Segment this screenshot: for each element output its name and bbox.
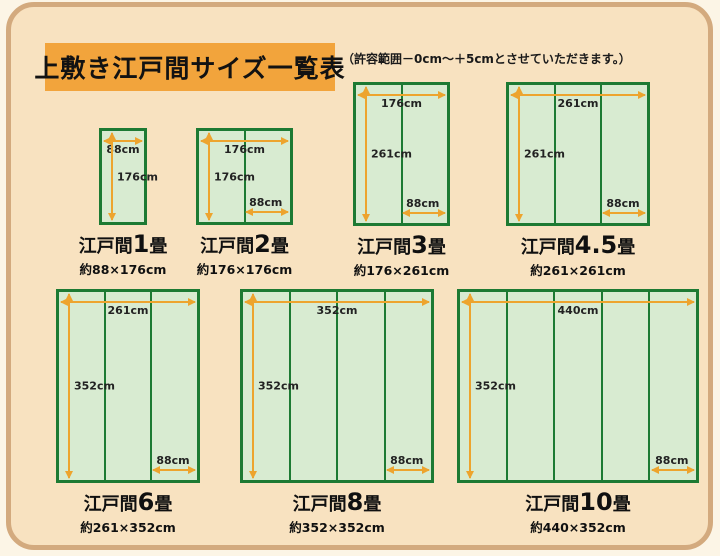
height-dimension-label: 176cm [117, 171, 158, 182]
height-dimension-arrow [111, 133, 113, 220]
diagram-title-prefix: 江戸間 [525, 494, 579, 515]
height-dimension-label: 261cm [371, 149, 412, 160]
diagram-title-suffix: 畳 [613, 494, 631, 515]
width-dimension-arrow [511, 94, 645, 96]
diagram-title-suffix: 畳 [428, 237, 446, 258]
diagram-caption: 江戸間6畳 約261×352cm [80, 489, 176, 536]
size-diagram-edoma-1jo: 88cm 176cm 江戸間1畳 約88×176cm [99, 128, 147, 225]
width-dimension-label: 352cm [243, 305, 431, 316]
diagram-title-number: 3 [411, 231, 428, 259]
size-diagram-edoma-4-5jo: 261cm 261cm 88cm 江戸間4.5畳 約261×261cm [506, 82, 650, 226]
diagram-title-suffix: 畳 [154, 494, 172, 515]
diagram-caption: 江戸間3畳 約176×261cm [354, 232, 450, 279]
diagram-title-number: 1 [133, 230, 150, 258]
panel-width-dimension-arrow [246, 211, 289, 213]
rug-rect: 176cm 261cm 88cm [353, 82, 450, 226]
panel-width-dimension-arrow [153, 469, 195, 471]
height-dimension-label: 352cm [475, 381, 516, 392]
width-dimension-arrow [104, 140, 142, 142]
height-dimension-label: 176cm [214, 171, 255, 182]
rug-panel [150, 292, 197, 480]
width-dimension-arrow [201, 140, 288, 142]
size-diagram-edoma-3jo: 176cm 261cm 88cm 江戸間3畳 約176×261cm [353, 82, 450, 226]
height-dimension-arrow [68, 294, 70, 478]
board-panel: 上敷き江戸間サイズ一覧表 （許容範囲－0cm～＋5cmとさせていただきます。） … [6, 2, 713, 550]
height-dimension-label: 352cm [258, 381, 299, 392]
diagram-title: 江戸間10畳 [525, 489, 630, 515]
height-dimension-arrow [208, 133, 210, 220]
diagram-size-text: 約176×176cm [197, 259, 293, 278]
panel-width-dimension-arrow [652, 469, 694, 471]
panel-width-dimension-label: 88cm [648, 455, 696, 466]
diagram-title-prefix: 江戸間 [79, 236, 133, 257]
diagram-title: 江戸間6畳 [80, 489, 176, 515]
diagram-title: 江戸間1畳 [79, 231, 168, 257]
panel-width-dimension-arrow [387, 469, 430, 471]
diagram-title-prefix: 江戸間 [357, 237, 411, 258]
diagram-title: 江戸間8畳 [289, 489, 385, 515]
panel-width-dimension-label: 88cm [242, 197, 291, 208]
diagram-size-text: 約352×352cm [289, 517, 385, 536]
height-dimension-arrow [365, 87, 367, 221]
diagram-title-number: 8 [347, 488, 364, 516]
diagram-caption: 江戸間4.5畳 約261×261cm [521, 232, 636, 279]
diagram-size-text: 約88×176cm [79, 259, 168, 278]
rug-rect: 261cm 261cm 88cm [506, 82, 650, 226]
height-dimension-arrow [469, 294, 471, 478]
rug-rect: 261cm 352cm 88cm [56, 289, 200, 483]
width-dimension-label: 440cm [460, 305, 696, 316]
diagram-title-suffix: 畳 [149, 236, 167, 257]
diagram-title-number: 4.5 [575, 231, 618, 259]
diagram-title-suffix: 畳 [363, 494, 381, 515]
height-dimension-arrow [518, 87, 520, 221]
height-dimension-arrow [252, 294, 254, 478]
page-title: 上敷き江戸間サイズ一覧表 [45, 43, 335, 91]
diagram-caption: 江戸間10畳 約440×352cm [525, 489, 630, 536]
rug-panel [601, 292, 649, 480]
rug-panel [336, 292, 384, 480]
diagram-size-text: 約440×352cm [525, 517, 630, 536]
diagram-title: 江戸間2畳 [197, 231, 293, 257]
width-dimension-label: 176cm [199, 144, 290, 155]
rug-panel [384, 292, 432, 480]
tolerance-note: （許容範囲－0cm～＋5cmとさせていただきます。） [342, 50, 631, 67]
rug-rect: 352cm 352cm 88cm [240, 289, 434, 483]
diagram-caption: 江戸間2畳 約176×176cm [197, 231, 293, 278]
width-dimension-arrow [245, 301, 429, 303]
width-dimension-arrow [61, 301, 195, 303]
panel-width-dimension-arrow [403, 212, 446, 214]
rug-rect: 88cm 176cm [99, 128, 147, 225]
height-dimension-label: 261cm [524, 149, 565, 160]
diagram-title-prefix: 江戸間 [293, 494, 347, 515]
width-dimension-arrow [358, 94, 445, 96]
width-dimension-label: 261cm [509, 98, 647, 109]
diagram-caption: 江戸間8畳 約352×352cm [289, 489, 385, 536]
rug-rect: 176cm 176cm 88cm [196, 128, 293, 225]
diagram-title-prefix: 江戸間 [521, 237, 575, 258]
rug-rect: 440cm 352cm 88cm [457, 289, 699, 483]
diagram-title-prefix: 江戸間 [200, 236, 254, 257]
diagram-size-text: 約176×261cm [354, 260, 450, 279]
size-diagram-edoma-2jo: 176cm 176cm 88cm 江戸間2畳 約176×176cm [196, 128, 293, 225]
rug-panel [648, 292, 696, 480]
width-dimension-label: 261cm [59, 305, 197, 316]
diagram-title-suffix: 畳 [271, 236, 289, 257]
panel-width-dimension-label: 88cm [383, 455, 432, 466]
diagram-title: 江戸間4.5畳 [521, 232, 636, 258]
size-diagram-edoma-10jo: 440cm 352cm 88cm 江戸間10畳 約440×352cm [457, 289, 699, 483]
diagram-title-suffix: 畳 [617, 237, 635, 258]
diagram-title: 江戸間3畳 [354, 232, 450, 258]
width-dimension-label: 176cm [356, 98, 447, 109]
size-diagram-edoma-8jo: 352cm 352cm 88cm 江戸間8畳 約352×352cm [240, 289, 434, 483]
rug-panel [553, 292, 601, 480]
diagram-title-prefix: 江戸間 [84, 494, 138, 515]
height-dimension-label: 352cm [74, 381, 115, 392]
panel-width-dimension-label: 88cm [599, 198, 647, 209]
diagram-caption: 江戸間1畳 約88×176cm [79, 231, 168, 278]
panel-width-dimension-label: 88cm [149, 455, 197, 466]
diagram-title-number: 6 [138, 488, 155, 516]
diagram-title-number: 2 [254, 230, 271, 258]
width-dimension-arrow [462, 301, 694, 303]
diagram-title-number: 10 [579, 488, 612, 516]
diagram-size-text: 約261×352cm [80, 517, 176, 536]
diagram-size-text: 約261×261cm [521, 260, 636, 279]
size-diagram-edoma-6jo: 261cm 352cm 88cm 江戸間6畳 約261×352cm [56, 289, 200, 483]
panel-width-dimension-label: 88cm [399, 198, 448, 209]
panel-width-dimension-arrow [603, 212, 645, 214]
width-dimension-label: 88cm [102, 144, 144, 155]
